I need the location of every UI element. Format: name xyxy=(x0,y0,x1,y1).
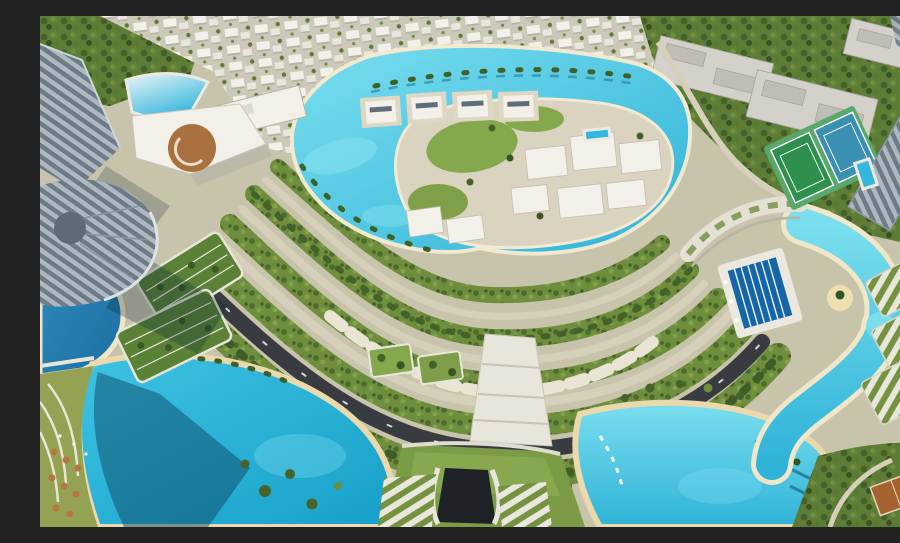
tunnel-mound xyxy=(378,443,585,527)
tower-core xyxy=(54,212,86,244)
aerial-render-canvas: Aerial render of a crescent-shaped lagoo… xyxy=(40,16,900,527)
aerial-render-figure: Aerial render of a crescent-shaped lagoo… xyxy=(40,16,900,527)
canal-island-palm xyxy=(836,291,845,300)
terrace-steps-left-of-tunnel xyxy=(378,474,436,527)
tunnel-entrance xyxy=(436,468,496,524)
terrace-steps-right-of-tunnel xyxy=(498,482,552,527)
water-sparkle xyxy=(254,434,346,478)
water-sparkle xyxy=(678,468,762,504)
